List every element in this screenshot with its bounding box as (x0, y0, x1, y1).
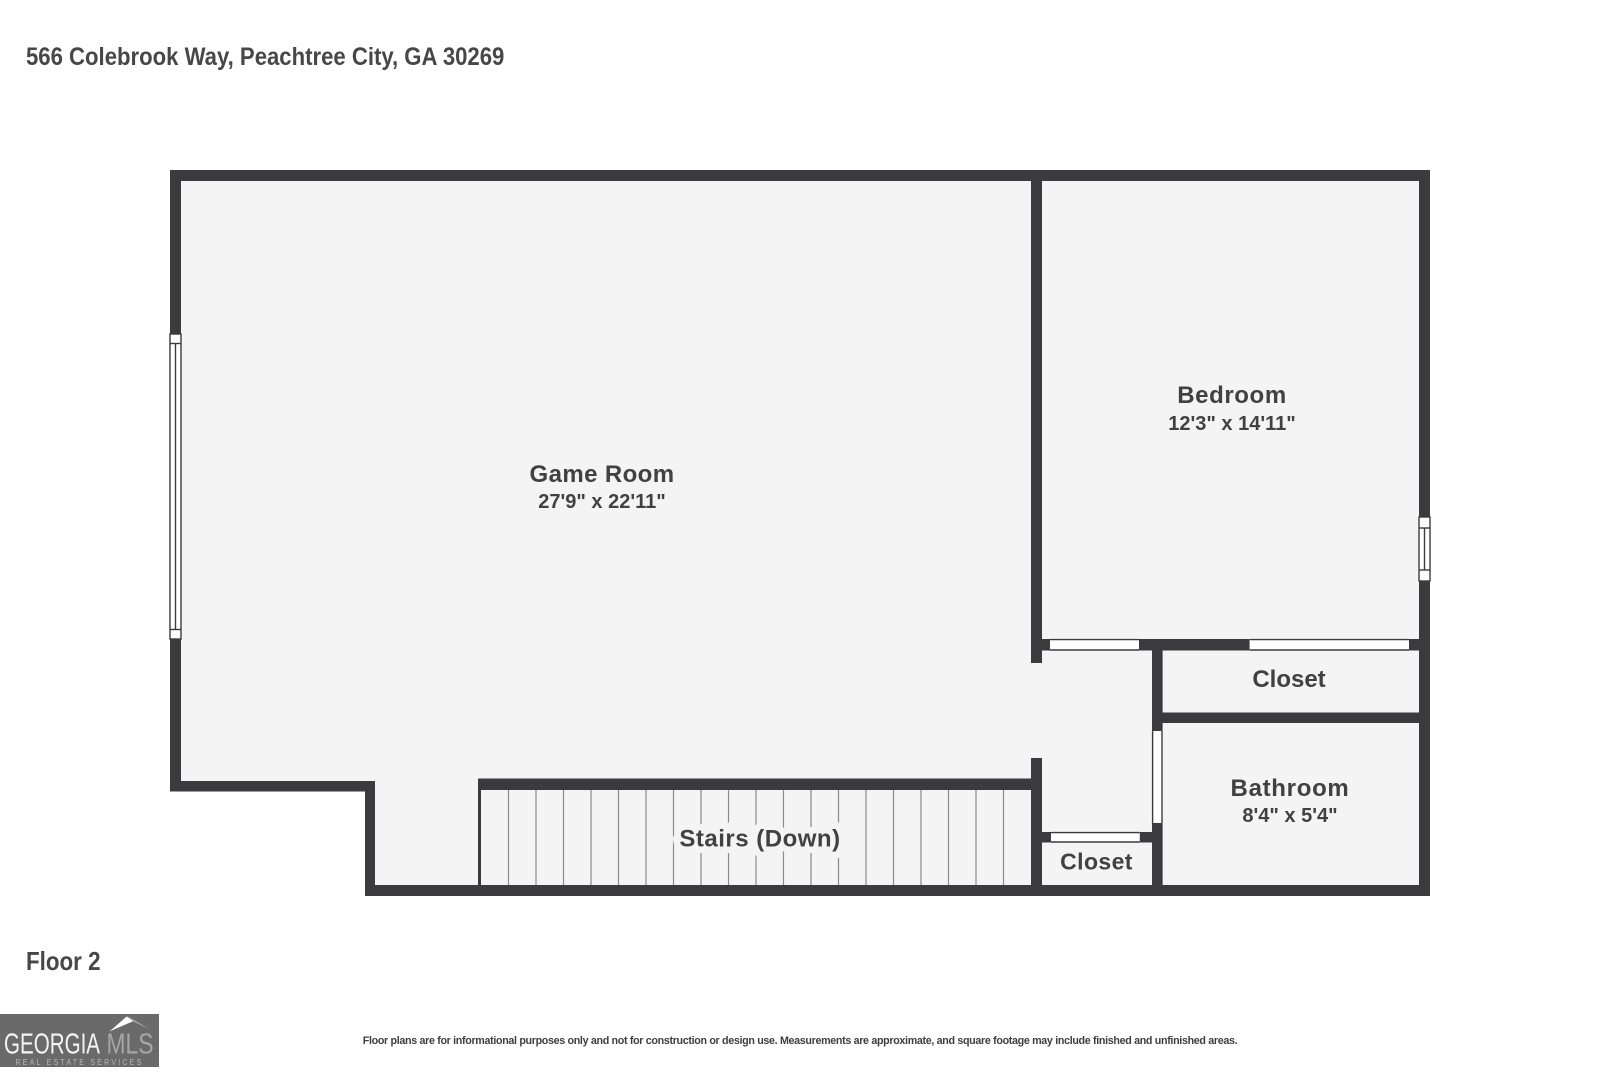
svg-text:Bedroom: Bedroom (1177, 382, 1287, 409)
svg-text:Bathroom: Bathroom (1231, 775, 1350, 802)
svg-text:Stairs (Down): Stairs (Down) (679, 826, 840, 853)
svg-text:REAL ESTATE SERVICES: REAL ESTATE SERVICES (16, 1058, 144, 1067)
svg-text:27'9" x 22'11": 27'9" x 22'11" (538, 491, 665, 513)
svg-text:Closet: Closet (1060, 849, 1133, 875)
svg-text:8'4" x 5'4": 8'4" x 5'4" (1242, 805, 1337, 827)
svg-text:Game Room: Game Room (530, 461, 675, 488)
svg-text:12'3" x 14'11": 12'3" x 14'11" (1168, 413, 1295, 435)
svg-text:Closet: Closet (1252, 666, 1325, 693)
